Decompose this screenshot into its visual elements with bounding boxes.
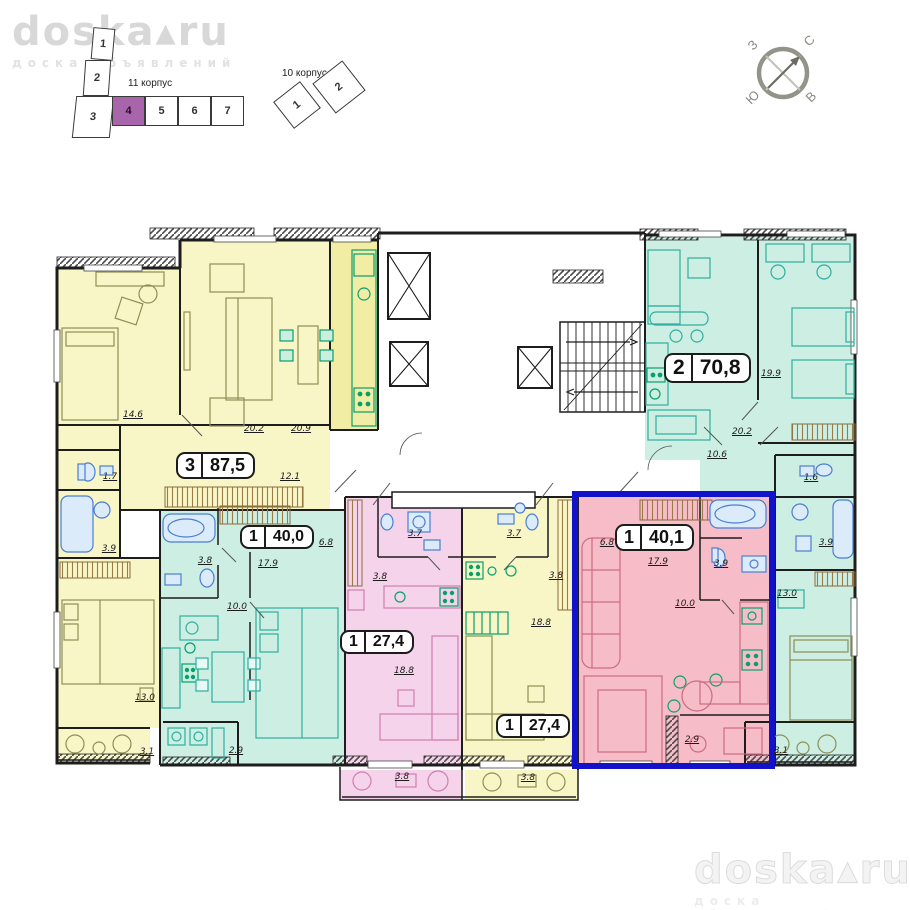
apartment-area: 87,5: [201, 454, 253, 477]
apartment-rooms-count: 2: [666, 355, 691, 381]
room-area-label: 17.9: [258, 559, 278, 569]
room-area-label: 3.1: [774, 746, 788, 756]
building10-section-1: 1: [273, 81, 321, 129]
room-area-label: 20.9: [291, 424, 311, 434]
compass-west-label: З: [745, 37, 761, 53]
floorplan-screenshot: doska▴ru доска объявлений doska▴ru доска…: [0, 0, 910, 910]
apartment-area: 40,0: [264, 527, 312, 547]
apartment-badge-70-8: 2 70,8: [664, 353, 751, 383]
apartment-rooms-count: 1: [342, 632, 364, 652]
apartment-area: 40,1: [640, 526, 692, 549]
apartment-area: 27,4: [364, 632, 412, 652]
room-area-label: 10.0: [675, 599, 695, 609]
room-area-label: 6.8: [319, 538, 333, 548]
room-area-label: 3.8: [549, 571, 563, 581]
room-area-label: 13.0: [777, 589, 797, 599]
building11-section-6: 6: [178, 96, 211, 126]
stair-treads: [560, 322, 645, 412]
apartment-badge-27-4-right: 1 27,4: [496, 714, 570, 738]
room-area-label: 3.9: [714, 559, 728, 569]
room-area-label: 18.8: [394, 666, 414, 676]
apartment-badge-40-0: 1 40,0: [240, 525, 314, 549]
apartment-rooms-count: 1: [617, 526, 640, 549]
compass-icon: З С Ю В: [735, 25, 845, 125]
compass-south-label: Ю: [743, 87, 763, 107]
room-area-label: 12.1: [280, 472, 300, 482]
apartment-area: 70,8: [691, 355, 749, 381]
elevator-x-marks: [388, 253, 552, 388]
building11-section-4-highlighted: 4: [112, 96, 145, 126]
building11-label: 11 корпус: [128, 78, 172, 89]
room-area-label: 1.6: [804, 473, 818, 483]
room-area-label: 3.8: [373, 572, 387, 582]
apartment-area: 27,4: [520, 716, 568, 736]
building-schematic: 1 2 3 4 5 6 7 11 корпус 10 корпус 1 2: [70, 22, 400, 152]
apartment-rooms-count: 1: [498, 716, 520, 736]
stair-arrows: [566, 339, 638, 395]
room-area-label: 10.0: [227, 602, 247, 612]
building11-section-7: 7: [211, 96, 244, 126]
compass-east-label: В: [803, 88, 820, 105]
room-area-label: 20.2: [732, 427, 752, 437]
apartment-badge-40-1-highlighted: 1 40,1: [615, 524, 694, 551]
room-area-label: 3.7: [408, 529, 422, 539]
apartment-rooms-count: 3: [178, 454, 201, 477]
room-area-label: 3.8: [395, 772, 409, 782]
room-area-label: 3.9: [102, 544, 116, 554]
room-area-label: 2.9: [229, 746, 243, 756]
room-area-label: 17.9: [648, 557, 668, 567]
room-area-label: 6.8: [600, 538, 614, 548]
room-area-label: 20.2: [244, 424, 264, 434]
room-area-label: 3.7: [507, 529, 521, 539]
apartment-rooms-count: 1: [242, 527, 264, 547]
room-area-label: 1.7: [103, 472, 117, 482]
room-area-label: 3.8: [198, 556, 212, 566]
room-area-label: 2.9: [685, 735, 699, 745]
apartment-badge-27-4-left: 1 27,4: [340, 630, 414, 654]
room-area-label: 14.6: [123, 410, 143, 420]
building11-section-3: 3: [72, 96, 114, 138]
room-area-label: 10.6: [707, 450, 727, 460]
apartment-badge-87-5: 3 87,5: [176, 452, 255, 479]
building11-section-5: 5: [145, 96, 178, 126]
room-area-label: 13.0: [135, 693, 155, 703]
elevators-and-stairs: [388, 253, 645, 412]
compass-north-label: С: [801, 32, 818, 49]
room-area-label: 3.1: [140, 747, 154, 757]
room-area-label: 19.9: [761, 369, 781, 379]
building11-section-2: 2: [83, 60, 112, 96]
room-area-label: 18.8: [531, 618, 551, 628]
room-area-label: 3.9: [819, 538, 833, 548]
room-area-label: 3.8: [521, 773, 535, 783]
building11-section-1: 1: [91, 27, 116, 61]
